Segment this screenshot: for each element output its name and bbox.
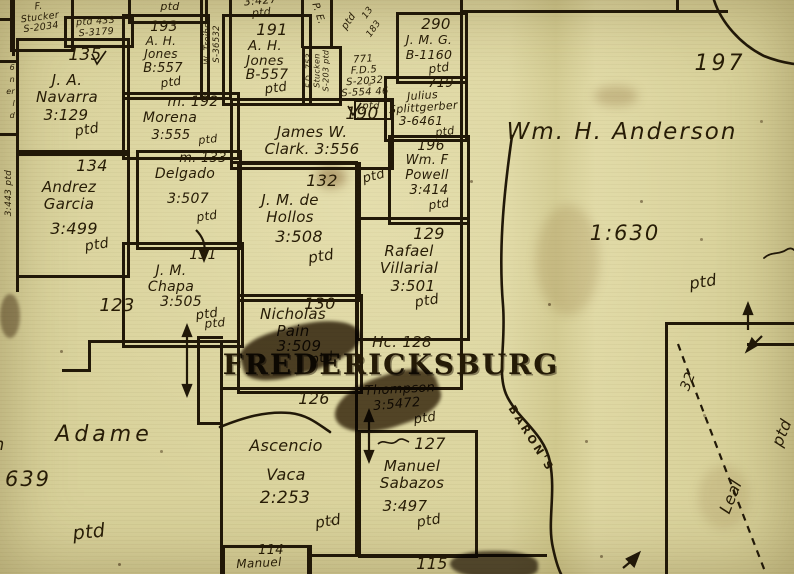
boundary-line [460, 0, 463, 390]
parcel-126-number: 126 [288, 390, 340, 408]
parcel-127-owner: Manuel Sabazos [362, 458, 462, 492]
parcel-adame-owner: Adame [28, 423, 180, 448]
paper-blemish [594, 86, 638, 106]
parcel-134-ref: 3:499 [38, 220, 110, 238]
parcel-132-number: 132 [296, 172, 348, 190]
parcel-192-owner: Morena [128, 111, 212, 127]
boundary-line [747, 343, 794, 346]
parcel-adame-ptd: ptd [55, 519, 123, 547]
fragment-top-ptd: ptd [150, 1, 190, 13]
boundary-line [665, 322, 668, 574]
parcel-anderson-ptd: ptd [673, 269, 733, 296]
boundary-line [665, 322, 794, 325]
plat-map: F. Stucker S-2034 ptd 433 S-3179 ptd 135… [0, 0, 794, 574]
parcel-134-number: 134 [66, 157, 118, 175]
fragment-edge-letters: 6 n er l d [0, 62, 15, 122]
parcel-133-ref: 3:507 [154, 192, 222, 208]
parcel-vaca-ref: 2:253 [238, 489, 332, 508]
boundary-line [676, 0, 679, 12]
parcel-190-owner: James W. Clark. 3:556 [238, 124, 386, 158]
leal-ptd: ptd [764, 405, 794, 460]
boundary-line [230, 161, 358, 164]
parcel-135-number: 135 [60, 46, 110, 65]
boundary-line [197, 336, 223, 339]
parcel-123-number: 123 [90, 296, 144, 316]
parcel-771-ref: F.D.5 S-2032 [346, 64, 384, 88]
boundary-line [88, 340, 91, 372]
parcel-197-number: 197 [684, 52, 756, 77]
boundary-line [307, 545, 310, 574]
boundary-line [62, 369, 91, 372]
boundary-line [0, 133, 18, 136]
parcel-290-owner: J. M. G. [398, 33, 460, 47]
parcel-anderson-ref: 1:630 [576, 222, 674, 246]
boundary-line [460, 10, 728, 13]
creek-label-barons: BARON'S [506, 403, 565, 486]
boundary-line [301, 0, 304, 48]
boundary-line [330, 0, 333, 48]
parcel-133-number: m. 133 [172, 152, 234, 167]
parcel-treibs-label: W. Treibs S-36532 [204, 9, 222, 79]
parcel-vaca-owner: Ascencio Vaca [226, 432, 346, 490]
parcel-stucken-label: F.D. 753 Stucken S-203 ptd [305, 46, 330, 96]
ink-stain [450, 551, 538, 574]
parcel-135-owner: J. A. Navarra [12, 72, 122, 106]
parcel-134-owner: Andrez Garcia [24, 179, 114, 213]
boundary-line [197, 422, 223, 425]
ink-stain [0, 294, 20, 338]
parcel-132-owner: J. M. de Hollos [244, 192, 336, 226]
parcel-132-ref: 3:508 [258, 228, 340, 246]
parcel-193-owner: A. H. Jones [130, 35, 192, 62]
parcel-290-number: 290 [412, 16, 460, 33]
parcel-127-number: 127 [404, 435, 456, 453]
parcel-133-owner: Delgado [142, 167, 228, 183]
boundary-line [88, 340, 238, 343]
parcel-191-number: 191 [246, 21, 298, 39]
fragment-diag-ptd: ptd [336, 6, 362, 37]
paper-speck [118, 563, 121, 566]
parcel-129-number: 129 [402, 225, 456, 243]
parcel-191-owner: A. H. Jones [232, 39, 298, 69]
parcel-192-number: m. 192 [158, 95, 228, 111]
parcel-vaca-ptd: ptd [301, 509, 355, 534]
parcel-131-number: 131 [178, 248, 228, 264]
parcel-anderson-owner: Wm. H. Anderson [488, 120, 756, 146]
boundary-line [197, 336, 200, 424]
parcel-196-owner: Wm. F Powell [392, 154, 462, 183]
parcel-adame-ref: 639 [0, 468, 64, 492]
parcel-771-label: 771F.D.5 S-2032 [337, 52, 391, 89]
fragment-ptd433: ptd 433 S-3179 [65, 15, 126, 40]
leal-number: 32 [675, 363, 702, 400]
fragment-edge-443: 3:443 ptd [4, 162, 14, 224]
parcel-131-owner: J. M. Chapa [132, 264, 210, 295]
parcel-129-owner: Rafael Villarial [360, 243, 458, 277]
fragment-adame-pre: n [0, 436, 8, 455]
